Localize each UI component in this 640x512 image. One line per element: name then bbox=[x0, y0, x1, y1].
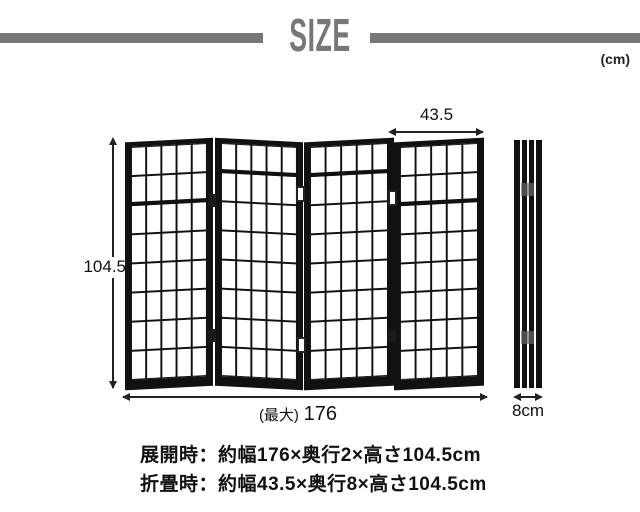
screen-panel-1 bbox=[125, 138, 213, 391]
spec-folded: 折畳時：約幅43.5×奥行8×高さ104.5cm bbox=[140, 469, 487, 496]
hinge-icon bbox=[521, 183, 534, 196]
page-title: SIZE bbox=[285, 12, 355, 58]
hinge-icon bbox=[521, 331, 534, 344]
arrowhead-left-icon bbox=[513, 393, 521, 401]
arrowhead-left-icon bbox=[122, 393, 130, 401]
header-rule-right bbox=[370, 33, 640, 43]
hinge-icon bbox=[388, 190, 397, 206]
total-width-dimension-label: (最大) 176 bbox=[198, 403, 398, 425]
folded-screen-side-view bbox=[514, 140, 542, 388]
product-size-diagram: SIZE (cm) 104.5 43.5 bbox=[0, 0, 640, 512]
folded-panel-bar bbox=[522, 140, 527, 388]
shoji-grid bbox=[131, 143, 207, 380]
screen-panel-4 bbox=[394, 138, 484, 391]
folded-depth-dimension-label: 8cm bbox=[498, 402, 558, 421]
hinge-icon bbox=[296, 186, 305, 202]
folded-panel-bar bbox=[529, 140, 534, 388]
panel-width-dimension-line bbox=[390, 131, 483, 133]
arrowhead-left-icon bbox=[388, 128, 396, 136]
height-dimension-label: 104.5 bbox=[62, 257, 128, 278]
arrowhead-up-icon bbox=[109, 137, 117, 145]
folded-panel-bar bbox=[514, 140, 520, 388]
hinge-icon bbox=[208, 194, 216, 207]
total-width-dimension-line bbox=[123, 396, 487, 398]
header-rule-left bbox=[0, 33, 263, 43]
shoji-grid bbox=[221, 143, 297, 380]
arrowhead-down-icon bbox=[109, 381, 117, 389]
hinge-icon bbox=[388, 329, 396, 342]
shoji-grid bbox=[310, 143, 388, 380]
folded-panel-bar bbox=[536, 140, 542, 388]
arrowhead-right-icon bbox=[535, 393, 543, 401]
screen-panel-2 bbox=[215, 138, 303, 391]
total-width-value: 176 bbox=[304, 403, 337, 425]
arrowhead-right-icon bbox=[480, 393, 488, 401]
arrowhead-right-icon bbox=[476, 128, 484, 136]
panel-width-dimension-label: 43.5 bbox=[389, 106, 484, 125]
spec-expanded: 展開時：約幅176×奥行2×高さ104.5cm bbox=[140, 440, 481, 467]
total-width-prefix: (最大) bbox=[259, 407, 299, 424]
unit-note: (cm) bbox=[575, 51, 630, 67]
hinge-icon bbox=[208, 329, 216, 342]
screen-panel-3 bbox=[304, 138, 394, 391]
shoji-grid bbox=[400, 143, 478, 380]
hinge-icon bbox=[297, 337, 306, 353]
